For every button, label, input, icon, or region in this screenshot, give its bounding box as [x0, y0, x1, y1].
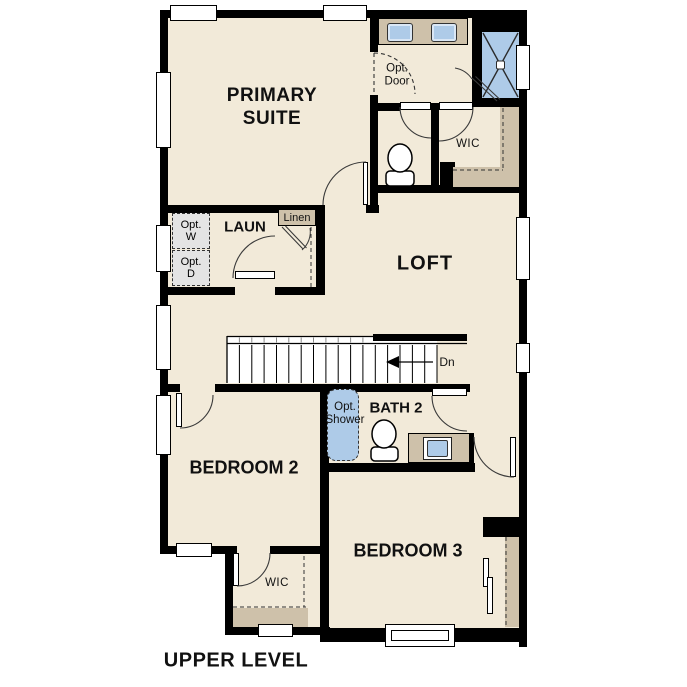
sink-icon	[431, 23, 457, 42]
wall	[366, 205, 379, 213]
page-title: UPPER LEVEL	[164, 650, 308, 673]
wall	[472, 98, 527, 107]
wall	[316, 205, 325, 295]
room-label-line: PRIMARY	[227, 84, 317, 107]
wall	[160, 287, 235, 295]
wall	[160, 384, 180, 392]
room-label-wic-lower: WIC	[265, 577, 289, 589]
wall	[431, 103, 439, 185]
wall	[270, 546, 320, 554]
wall	[370, 18, 378, 52]
room-label-wic-upper: WIC	[456, 138, 480, 150]
window	[516, 217, 530, 280]
wic-upper-shelving	[453, 167, 519, 187]
door-leaf	[400, 102, 431, 110]
window	[516, 343, 530, 373]
opt-door-label: Opt. Door	[385, 63, 410, 88]
window	[156, 395, 171, 455]
wall	[320, 463, 475, 472]
door-leaf	[235, 271, 275, 279]
bedroom3-closet-shelving	[505, 537, 519, 627]
floor-plan: Opt. W Opt. D	[0, 0, 687, 687]
opt-washer-box: Opt. W	[172, 213, 210, 249]
opt-door-line: Door	[385, 75, 410, 88]
door-leaf	[176, 393, 182, 427]
opt-shower-label: Opt. Shower	[326, 401, 365, 427]
opt-washer-label: W	[186, 231, 196, 243]
wall	[370, 103, 400, 111]
room-label-laundry: LAUN	[224, 219, 266, 236]
door-leaf	[233, 553, 239, 586]
window	[323, 5, 367, 21]
window-inner-frame	[391, 630, 449, 641]
stairs-dn-label: Dn	[439, 355, 454, 369]
wall	[225, 554, 233, 635]
door-leaf	[439, 102, 473, 110]
sink-icon	[387, 23, 413, 42]
linen-label: Linen	[284, 212, 311, 224]
room-label-primary-suite: PRIMARY SUITE	[227, 84, 317, 130]
wall	[275, 287, 325, 295]
window	[516, 45, 530, 90]
window	[176, 543, 212, 557]
door-leaf	[510, 437, 516, 477]
door-leaf	[432, 388, 467, 396]
room-label-bedroom3: BEDROOM 3	[353, 541, 462, 562]
wall	[483, 517, 527, 537]
window	[156, 305, 171, 370]
window	[156, 225, 171, 272]
opt-dryer-box: Opt. D	[172, 250, 210, 286]
room-label-bath2: BATH 2	[369, 400, 422, 417]
window	[156, 72, 171, 148]
opt-shower-line: Shower	[326, 414, 365, 427]
window	[385, 624, 455, 647]
opt-dryer-label: D	[187, 268, 195, 280]
shower	[482, 32, 519, 98]
window	[170, 5, 217, 21]
opt-washer-label: Opt.	[181, 219, 202, 231]
room-label-line: SUITE	[227, 107, 317, 130]
opt-dryer-label: Opt.	[181, 256, 202, 268]
wall	[373, 334, 467, 341]
door-leaf	[363, 162, 368, 205]
opt-shower-line: Opt.	[326, 401, 365, 414]
opt-door-line: Opt.	[385, 63, 410, 76]
stairwell	[227, 336, 437, 383]
window	[258, 624, 293, 637]
wall	[472, 10, 527, 32]
room-label-loft: LOFT	[397, 253, 453, 276]
closet-bypass-door	[487, 577, 493, 614]
room-label-bedroom2: BEDROOM 2	[189, 458, 298, 479]
sink-icon	[427, 440, 448, 457]
